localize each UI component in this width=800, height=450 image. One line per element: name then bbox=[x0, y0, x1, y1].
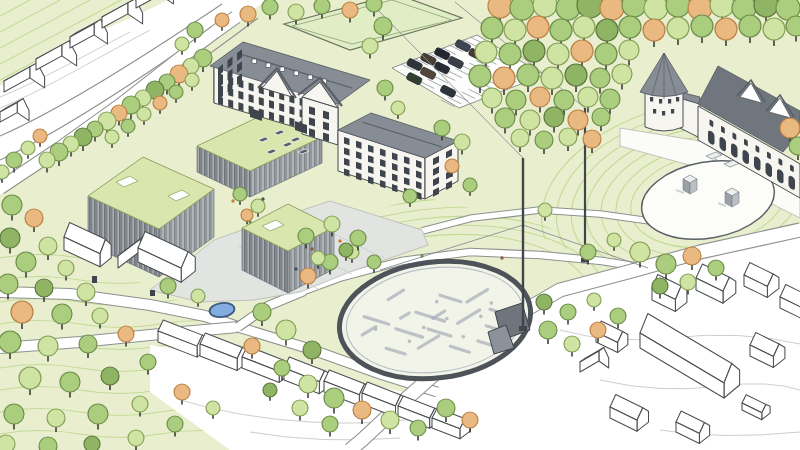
tree-canopy bbox=[565, 64, 587, 86]
window bbox=[289, 118, 294, 127]
tree-canopy bbox=[132, 396, 148, 412]
tree-canopy bbox=[39, 152, 55, 168]
window bbox=[269, 100, 274, 109]
window bbox=[228, 99, 233, 108]
tree-canopy bbox=[381, 411, 399, 429]
tree-canopy bbox=[403, 189, 417, 203]
tree-canopy bbox=[374, 17, 392, 35]
tree-canopy bbox=[160, 278, 176, 294]
tree-canopy bbox=[499, 43, 521, 65]
tree-canopy bbox=[274, 360, 290, 376]
tree-canopy bbox=[0, 331, 21, 353]
tree-canopy bbox=[580, 244, 596, 260]
tree-canopy bbox=[568, 110, 588, 130]
tree-canopy bbox=[541, 67, 563, 89]
tree-canopy bbox=[92, 308, 108, 324]
person-dot bbox=[248, 220, 251, 223]
tree-canopy bbox=[244, 338, 260, 354]
window bbox=[650, 97, 653, 102]
tree-canopy bbox=[253, 303, 271, 321]
tree-canopy bbox=[276, 320, 296, 340]
tree-canopy bbox=[185, 73, 199, 87]
tree-canopy bbox=[39, 437, 57, 450]
tree-canopy bbox=[510, 0, 534, 20]
tree-canopy bbox=[2, 195, 22, 215]
tree-canopy bbox=[511, 129, 529, 147]
tree-canopy bbox=[350, 230, 366, 246]
tree-canopy bbox=[105, 130, 119, 144]
person-dot bbox=[231, 199, 234, 202]
tree-canopy bbox=[559, 128, 577, 146]
tree-canopy bbox=[445, 159, 459, 173]
tree-canopy bbox=[571, 40, 593, 62]
tree-canopy bbox=[481, 17, 503, 39]
tree-canopy bbox=[495, 108, 515, 128]
tree-canopy bbox=[366, 0, 382, 12]
person-dot bbox=[338, 239, 341, 242]
tree-canopy bbox=[101, 367, 119, 385]
window bbox=[249, 94, 254, 103]
tree-canopy bbox=[652, 278, 668, 294]
tree-canopy bbox=[786, 16, 800, 36]
person-dot bbox=[294, 267, 297, 270]
window bbox=[671, 109, 674, 114]
tree-canopy bbox=[240, 6, 256, 22]
tree-canopy bbox=[251, 199, 265, 213]
window bbox=[238, 102, 243, 111]
tree-canopy bbox=[303, 341, 321, 359]
window bbox=[659, 99, 662, 104]
roof-dormer bbox=[266, 63, 271, 68]
tree-canopy bbox=[169, 85, 183, 99]
window bbox=[668, 99, 671, 104]
tree-canopy bbox=[536, 294, 552, 310]
tree-canopy bbox=[0, 165, 9, 179]
site-plan-stage: Aerial site-plan illustration of a schoo… bbox=[0, 0, 800, 450]
window bbox=[279, 103, 284, 112]
window bbox=[653, 109, 656, 114]
tree-canopy bbox=[619, 16, 641, 38]
tree-canopy bbox=[342, 2, 358, 18]
tree-canopy bbox=[656, 254, 676, 274]
tree-canopy bbox=[578, 87, 598, 107]
tree-canopy bbox=[482, 88, 502, 108]
tree-canopy bbox=[0, 435, 15, 450]
tree-canopy bbox=[463, 178, 477, 192]
tree-canopy bbox=[11, 301, 33, 323]
window bbox=[279, 115, 284, 124]
tree-canopy bbox=[84, 436, 100, 450]
tree-canopy bbox=[324, 388, 344, 408]
tree-canopy bbox=[19, 367, 41, 389]
tree-canopy bbox=[175, 37, 189, 51]
tree-canopy bbox=[504, 19, 526, 41]
tree-canopy bbox=[530, 87, 550, 107]
tree-canopy bbox=[550, 19, 572, 41]
tree-canopy bbox=[25, 209, 43, 227]
person-dot bbox=[310, 247, 313, 250]
tree-canopy bbox=[4, 404, 24, 424]
site-plan-canvas: Aerial site-plan illustration of a schoo… bbox=[0, 0, 800, 450]
tree-canopy bbox=[739, 15, 761, 37]
tree-canopy bbox=[493, 67, 515, 89]
tree-canopy bbox=[174, 384, 190, 400]
tree-canopy bbox=[21, 141, 35, 155]
tree-canopy bbox=[77, 283, 95, 301]
window bbox=[249, 82, 254, 91]
doorway bbox=[150, 290, 155, 296]
tree-canopy bbox=[564, 336, 580, 352]
tree-canopy bbox=[619, 40, 639, 60]
tree-canopy bbox=[437, 399, 455, 417]
tree-canopy bbox=[630, 242, 650, 262]
tree-canopy bbox=[600, 0, 624, 20]
person-dot bbox=[500, 256, 503, 259]
tree-canopy bbox=[0, 274, 18, 294]
tree-canopy bbox=[520, 110, 540, 130]
tree-canopy bbox=[462, 412, 478, 428]
tree-canopy bbox=[311, 251, 325, 265]
roof-dormer bbox=[294, 71, 299, 76]
tree-canopy bbox=[38, 336, 58, 356]
tree-canopy bbox=[79, 335, 97, 353]
tree-canopy bbox=[475, 41, 497, 63]
roof-dormer bbox=[308, 75, 313, 80]
tree-canopy bbox=[680, 274, 696, 290]
tree-canopy bbox=[300, 268, 316, 284]
tree-canopy bbox=[488, 0, 512, 18]
tree-canopy bbox=[590, 322, 606, 338]
tree-canopy bbox=[587, 293, 601, 307]
tree-canopy bbox=[58, 260, 74, 276]
tree-canopy bbox=[0, 228, 20, 248]
tree-canopy bbox=[527, 16, 549, 38]
tree-canopy bbox=[314, 0, 330, 14]
tree-canopy bbox=[544, 107, 564, 127]
tree-canopy bbox=[708, 260, 724, 276]
tree-canopy bbox=[288, 4, 304, 20]
tree-canopy bbox=[780, 118, 800, 138]
doorway bbox=[92, 276, 97, 283]
tree-canopy bbox=[556, 0, 580, 20]
tree-canopy bbox=[39, 237, 57, 255]
person-dot bbox=[420, 254, 423, 257]
tree-canopy bbox=[715, 18, 737, 40]
tree-canopy bbox=[644, 0, 668, 20]
tree-canopy bbox=[140, 354, 156, 370]
tree-canopy bbox=[263, 383, 277, 397]
tree-canopy bbox=[137, 107, 151, 121]
tree-canopy bbox=[377, 80, 393, 96]
tree-canopy bbox=[52, 304, 72, 324]
tree-canopy bbox=[434, 120, 450, 136]
tree-canopy bbox=[595, 43, 617, 65]
masts-and-cables-part bbox=[519, 326, 527, 331]
tree-canopy bbox=[535, 131, 553, 149]
tree-canopy bbox=[454, 134, 470, 150]
tree-canopy bbox=[683, 247, 701, 265]
tree-canopy bbox=[353, 401, 371, 419]
window bbox=[662, 111, 665, 116]
tree-canopy bbox=[33, 129, 47, 143]
tree-canopy bbox=[410, 420, 426, 436]
tree-canopy bbox=[538, 203, 552, 217]
tree-canopy bbox=[607, 233, 621, 247]
tree-canopy bbox=[612, 64, 632, 84]
tree-canopy bbox=[391, 101, 405, 115]
tree-canopy bbox=[262, 0, 278, 15]
tree-canopy bbox=[523, 40, 545, 62]
tree-canopy bbox=[298, 228, 314, 244]
window bbox=[269, 112, 274, 121]
tree-canopy bbox=[560, 304, 576, 320]
tree-canopy bbox=[153, 96, 167, 110]
window bbox=[259, 97, 264, 106]
tree-canopy bbox=[573, 16, 595, 38]
tree-canopy bbox=[233, 187, 247, 201]
tree-canopy bbox=[590, 68, 610, 88]
tree-canopy bbox=[469, 65, 491, 87]
tree-canopy bbox=[206, 401, 220, 415]
tree-canopy bbox=[16, 252, 36, 272]
tree-canopy bbox=[292, 400, 308, 416]
window bbox=[238, 91, 243, 100]
tree-canopy bbox=[241, 209, 253, 221]
tree-canopy bbox=[643, 19, 665, 41]
tree-canopy bbox=[506, 90, 526, 110]
tree-canopy bbox=[592, 108, 610, 126]
tree-canopy bbox=[667, 17, 689, 39]
tree-canopy bbox=[610, 308, 626, 324]
tree-canopy bbox=[299, 375, 317, 393]
window bbox=[289, 106, 294, 115]
roof-dormer bbox=[280, 67, 285, 72]
window bbox=[676, 97, 679, 102]
tree-canopy bbox=[339, 243, 353, 257]
tree-canopy bbox=[763, 18, 785, 40]
tree-canopy bbox=[35, 279, 53, 297]
tree-canopy bbox=[47, 409, 65, 427]
tree-canopy bbox=[362, 38, 378, 54]
tree-canopy bbox=[322, 416, 338, 432]
tree-canopy bbox=[596, 19, 618, 41]
tree-canopy bbox=[167, 416, 183, 432]
tree-canopy bbox=[367, 255, 381, 269]
tree-canopy bbox=[600, 89, 620, 109]
tree-canopy bbox=[583, 130, 601, 148]
tree-canopy bbox=[88, 404, 108, 424]
tree-canopy bbox=[187, 22, 203, 38]
tree-canopy bbox=[517, 64, 539, 86]
tree-canopy bbox=[547, 43, 569, 65]
tree-canopy bbox=[121, 119, 135, 133]
tree-canopy bbox=[191, 289, 205, 303]
tree-canopy bbox=[215, 13, 229, 27]
person-dot bbox=[261, 197, 264, 200]
tree-canopy bbox=[691, 15, 713, 37]
tree-canopy bbox=[118, 326, 134, 342]
tree-canopy bbox=[6, 152, 22, 168]
tree-canopy bbox=[128, 430, 144, 446]
roof-dormer bbox=[252, 59, 257, 64]
tree-canopy bbox=[539, 321, 557, 339]
tree-canopy bbox=[324, 216, 340, 232]
tree-canopy bbox=[60, 372, 80, 392]
